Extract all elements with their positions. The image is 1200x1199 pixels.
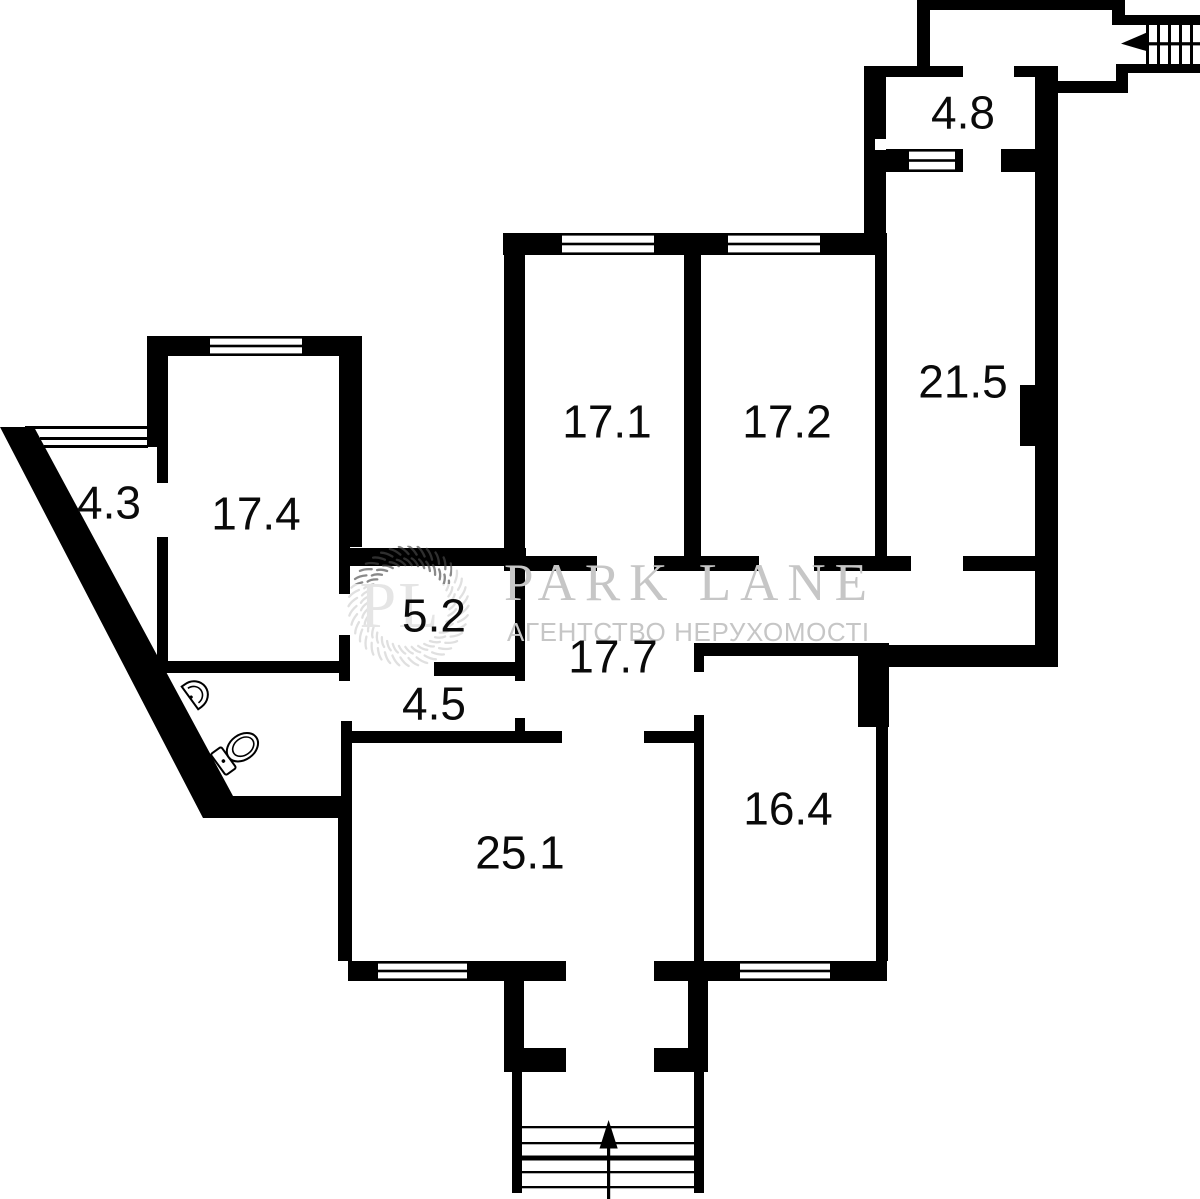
- svg-text:АГЕНТСТВО НЕРУХОМОСТІ: АГЕНТСТВО НЕРУХОМОСТІ: [507, 617, 870, 647]
- svg-text:17.2: 17.2: [742, 396, 832, 448]
- svg-text:4.3: 4.3: [77, 477, 141, 529]
- svg-text:PARK LANE: PARK LANE: [504, 554, 876, 612]
- svg-text:21.5: 21.5: [918, 356, 1008, 408]
- svg-text:5.2: 5.2: [402, 590, 466, 642]
- svg-text:16.4: 16.4: [743, 783, 833, 835]
- svg-text:4.8: 4.8: [931, 87, 995, 139]
- svg-text:4.5: 4.5: [402, 678, 466, 730]
- svg-text:17.4: 17.4: [211, 488, 301, 540]
- svg-text:17.1: 17.1: [562, 396, 652, 448]
- svg-text:25.1: 25.1: [475, 827, 565, 879]
- svg-text:17.7: 17.7: [568, 631, 658, 683]
